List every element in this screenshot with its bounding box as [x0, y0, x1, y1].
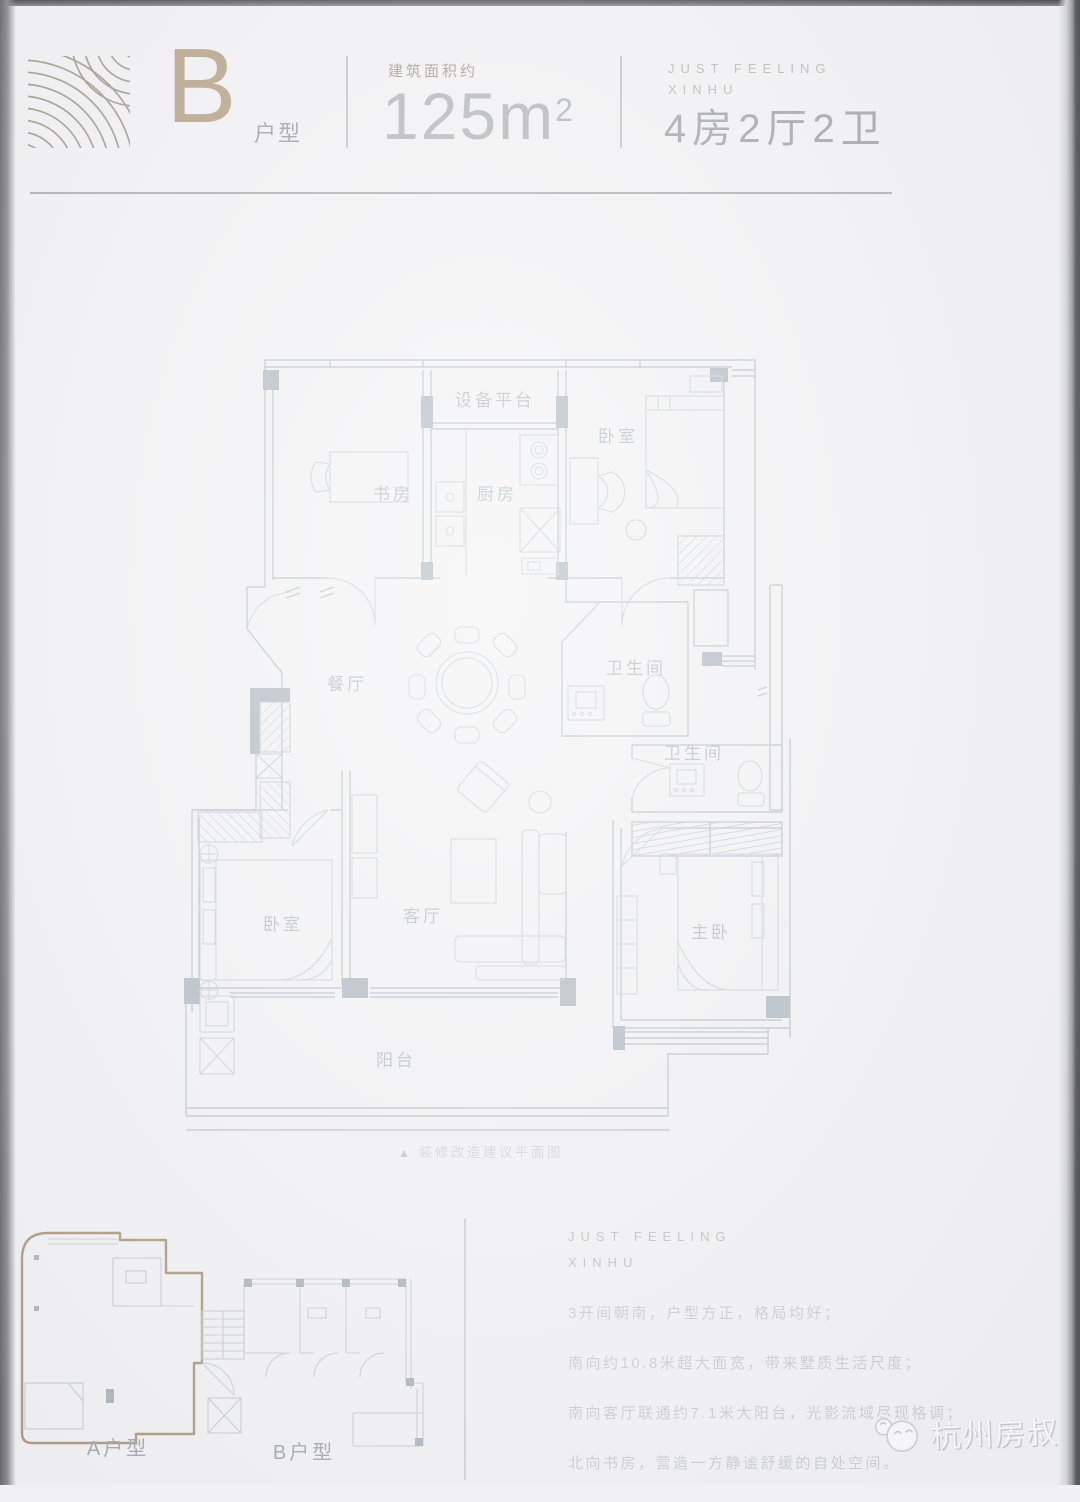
label-bedroom-south: 卧室: [263, 915, 303, 934]
scan-edge-top: [0, 0, 1080, 6]
header-divider-2: [620, 56, 622, 148]
label-master-bedroom: 主卧: [691, 923, 731, 942]
header-divider-1: [346, 56, 348, 148]
floorplan-drawing: 设备平台 书房 厨房 卧室 餐厅 卫生间 卫生间 卧室 客厅 主卧 阳台: [170, 340, 810, 1140]
label-dining: 餐厅: [327, 675, 367, 694]
balcony-details: [200, 996, 234, 1074]
label-kitchen: 厨房: [477, 485, 517, 504]
unit-suffix-label: 户型: [254, 116, 302, 148]
description-line-1: 3开间朝南，户型方正，格局均好；: [568, 1302, 988, 1323]
keyplan-label-unit-a: A户型: [87, 1437, 149, 1460]
area-value: 125m2: [382, 78, 573, 154]
bedroom-north-furniture: [570, 376, 724, 585]
label-bathroom-2: 卫生间: [664, 744, 724, 763]
page-fold-line: [464, 1218, 466, 1480]
watermark: 杭州房叔: [871, 1405, 1059, 1459]
keyplan-unit-b-outline: [244, 1279, 423, 1446]
scan-edge-right: [1058, 0, 1080, 1485]
brand-line-1: JUST FEELING: [668, 58, 832, 79]
description-block: JUST FEELING XINHU 3开间朝南，户型方正，格局均好； 南向约1…: [568, 1224, 988, 1502]
room-layout-text: 4房2厅2卫: [664, 96, 887, 154]
bathroom-1-fixtures: [568, 675, 670, 726]
label-living: 客厅: [403, 907, 443, 926]
keyplan-drawing: A户型 B户型: [8, 1213, 470, 1485]
kitchen-sink: [436, 430, 466, 575]
plan-caption-text: 装修改造建议平面图: [419, 1145, 563, 1160]
label-study: 书房: [373, 485, 413, 504]
label-bathroom-1: 卫生间: [606, 659, 666, 678]
living-furniture: [352, 760, 566, 980]
kitchen-stove: [520, 435, 560, 574]
area-number: 125m: [382, 79, 555, 153]
label-balcony: 阳台: [376, 1051, 416, 1070]
watermark-face-icon: [871, 1409, 925, 1459]
brand-lines: JUST FEELING XINHU: [668, 58, 832, 100]
keyplan-unit-a-rooms: [25, 1239, 194, 1429]
label-equipment-platform: 设备平台: [455, 391, 535, 410]
door-swings: [247, 578, 670, 866]
description-line-2: 南向约10.8米超大面宽，带来墅质生活尺度；: [568, 1352, 988, 1373]
area-sup: 2: [555, 92, 573, 128]
scan-edge-left: [0, 0, 16, 1485]
plan-caption: ▲装修改造建议平面图: [398, 1141, 563, 1161]
keyplan-label-unit-b: B户型: [273, 1441, 335, 1464]
header-rule: [30, 192, 892, 194]
keyplan-unit-a-outline: [22, 1233, 202, 1443]
dining-table: [409, 627, 525, 743]
triangle-marker-icon: ▲: [398, 1146, 410, 1160]
fingerprint-waves-icon: [28, 56, 130, 148]
label-bedroom-north: 卧室: [598, 427, 638, 446]
watermark-text: 杭州房叔: [929, 1406, 1058, 1455]
description-brand-line-1: JUST FEELING: [568, 1229, 732, 1244]
description-brand: JUST FEELING XINHU: [568, 1224, 988, 1276]
description-brand-line-2: XINHU: [568, 1255, 638, 1270]
entry-cabinets: [198, 702, 290, 842]
keyplan-stair-core: [202, 1311, 244, 1433]
bathroom-2-fixtures: [670, 761, 764, 806]
unit-letter: B: [166, 30, 237, 142]
